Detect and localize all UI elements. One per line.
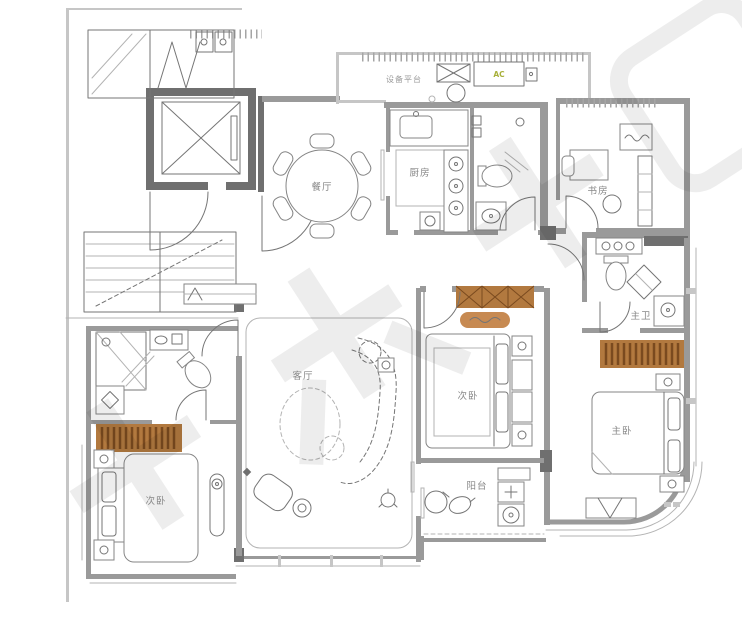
room-master-bedroom <box>586 340 684 518</box>
nightstand <box>512 424 532 446</box>
equipment-platform <box>429 62 537 102</box>
master-wardrobe-stripes <box>606 343 678 365</box>
nightstand <box>94 540 114 560</box>
master-toilet <box>606 262 626 290</box>
study-stool <box>603 195 621 213</box>
room-bedroom-middle <box>424 286 534 448</box>
nightstand <box>660 476 684 492</box>
nightstand <box>656 374 680 390</box>
armchair <box>250 471 296 515</box>
room-living <box>184 284 412 548</box>
floor-lamp <box>381 493 395 507</box>
bench <box>460 312 510 328</box>
kitchen-sink <box>400 116 432 138</box>
tv-bench <box>586 498 636 518</box>
shower-head <box>516 118 524 126</box>
label-equipment-platform: 设备平台 <box>386 74 422 84</box>
watering-can <box>447 494 473 517</box>
room-label-master-bath: 主卫 <box>630 310 651 322</box>
nightstand <box>512 336 532 356</box>
room-label-dining: 餐厅 <box>311 181 332 193</box>
room-label-study: 书房 <box>587 185 608 197</box>
floorplan-page: 餐厅 厨房 客厅 书房 主卫 主卧 次卧 次卧 阳台 设备平台 AC <box>0 0 742 622</box>
ac-unit-label: AC <box>493 70 505 79</box>
room-label-bedroom-left: 次卧 <box>145 495 166 507</box>
floorplan-drawing: 餐厅 厨房 客厅 书房 主卫 主卧 次卧 次卧 阳台 设备平台 AC <box>0 0 742 622</box>
side-table <box>378 358 394 372</box>
room-label-balcony: 阳台 <box>466 480 487 492</box>
room-label-bedroom-middle: 次卧 <box>457 390 478 402</box>
plant-pot <box>425 491 447 513</box>
room-balcony <box>425 468 530 526</box>
room-label-living: 客厅 <box>292 370 313 382</box>
room-label-master-bedroom: 主卧 <box>611 425 632 437</box>
master-bed <box>592 392 684 474</box>
room-label-kitchen: 厨房 <box>409 167 430 179</box>
